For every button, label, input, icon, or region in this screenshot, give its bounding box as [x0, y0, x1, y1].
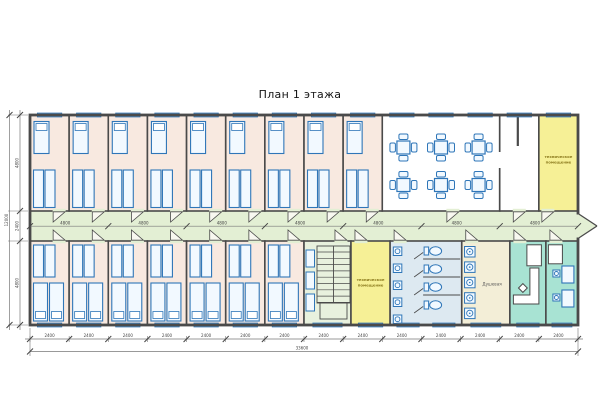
- svg-text:2400: 2400: [240, 333, 251, 338]
- svg-text:2400: 2400: [201, 333, 212, 338]
- room-bedroom-bottom-6: [226, 230, 265, 327]
- svg-text:33600: 33600: [296, 346, 309, 351]
- floor-plan: техническоепомещениетехническоепомещение…: [4, 110, 597, 356]
- room-bedroom-bottom-1: [30, 230, 69, 327]
- floor-plan-canvas: План 1 этажа техническоепомещениетехниче…: [0, 0, 600, 400]
- svg-text:12000: 12000: [4, 213, 9, 226]
- room-dining-top-10: [382, 113, 499, 222]
- svg-text:помещение: помещение: [546, 160, 572, 165]
- room-bedroom-bottom-7: [265, 230, 304, 327]
- room-bedroom-top-8: [304, 113, 343, 222]
- room-bedroom-top-5: [187, 113, 226, 222]
- svg-text:2400: 2400: [436, 333, 447, 338]
- svg-text:2400: 2400: [123, 333, 134, 338]
- room-bedroom-top-9: [343, 113, 382, 222]
- svg-text:4800: 4800: [217, 220, 228, 225]
- svg-text:4800: 4800: [14, 157, 19, 168]
- room-wc-bottom-10: [390, 230, 462, 327]
- svg-text:техническое: техническое: [357, 277, 385, 282]
- room-tech-top-12: техническоепомещение: [539, 113, 578, 222]
- room-bedroom-top-2: [69, 113, 108, 222]
- svg-text:4800: 4800: [138, 220, 149, 225]
- room-tech-bottom-9: техническоепомещение: [351, 230, 390, 327]
- room-bedroom-bottom-5: [187, 230, 226, 327]
- svg-text:2400: 2400: [397, 333, 408, 338]
- svg-text:4800: 4800: [452, 220, 463, 225]
- room-bedroom-top-3: [108, 113, 147, 222]
- room-bedroom-top-6: [226, 113, 265, 222]
- svg-text:2400: 2400: [553, 333, 564, 338]
- svg-text:2400: 2400: [44, 333, 55, 338]
- room-bedroom-bottom-2: [69, 230, 108, 327]
- svg-text:помещение: помещение: [358, 283, 384, 288]
- svg-text:2400: 2400: [358, 333, 369, 338]
- room-bedroom-bottom-4: [147, 230, 186, 327]
- svg-text:4800: 4800: [295, 220, 306, 225]
- svg-text:2400: 2400: [279, 333, 290, 338]
- room-bedroom-top-7: [265, 113, 304, 222]
- svg-text:2400: 2400: [14, 220, 19, 231]
- svg-text:2400: 2400: [475, 333, 486, 338]
- dimension-left: 48002400480012000: [4, 110, 28, 330]
- room-hall-top-11: [500, 113, 539, 222]
- svg-text:2400: 2400: [514, 333, 525, 338]
- svg-text:4800: 4800: [373, 220, 384, 225]
- room-bedroom-top-4: [147, 113, 186, 222]
- dimension-bottom: 2400240024002400240024002400240024002400…: [25, 328, 583, 356]
- room-office-desks-bottom-13: [546, 230, 578, 327]
- room-bedroom-bottom-3: [108, 230, 147, 327]
- room-shower-bottom-11: Душевая: [462, 230, 510, 327]
- svg-text:4800: 4800: [14, 277, 19, 288]
- floor-plan-svg: техническоепомещениетехническоепомещение…: [0, 0, 600, 400]
- corridor-exit-arrow: [576, 214, 597, 239]
- svg-text:Душевая: Душевая: [482, 282, 502, 287]
- svg-text:4800: 4800: [60, 220, 71, 225]
- svg-text:2400: 2400: [318, 333, 329, 338]
- svg-text:2400: 2400: [162, 333, 173, 338]
- room-bedroom-top-1: [30, 113, 69, 222]
- svg-text:техническое: техническое: [545, 154, 573, 159]
- svg-text:4800: 4800: [530, 220, 541, 225]
- room-stair-bottom-8: [304, 230, 351, 327]
- svg-text:2400: 2400: [84, 333, 95, 338]
- room-office-l-bottom-12: [510, 230, 546, 327]
